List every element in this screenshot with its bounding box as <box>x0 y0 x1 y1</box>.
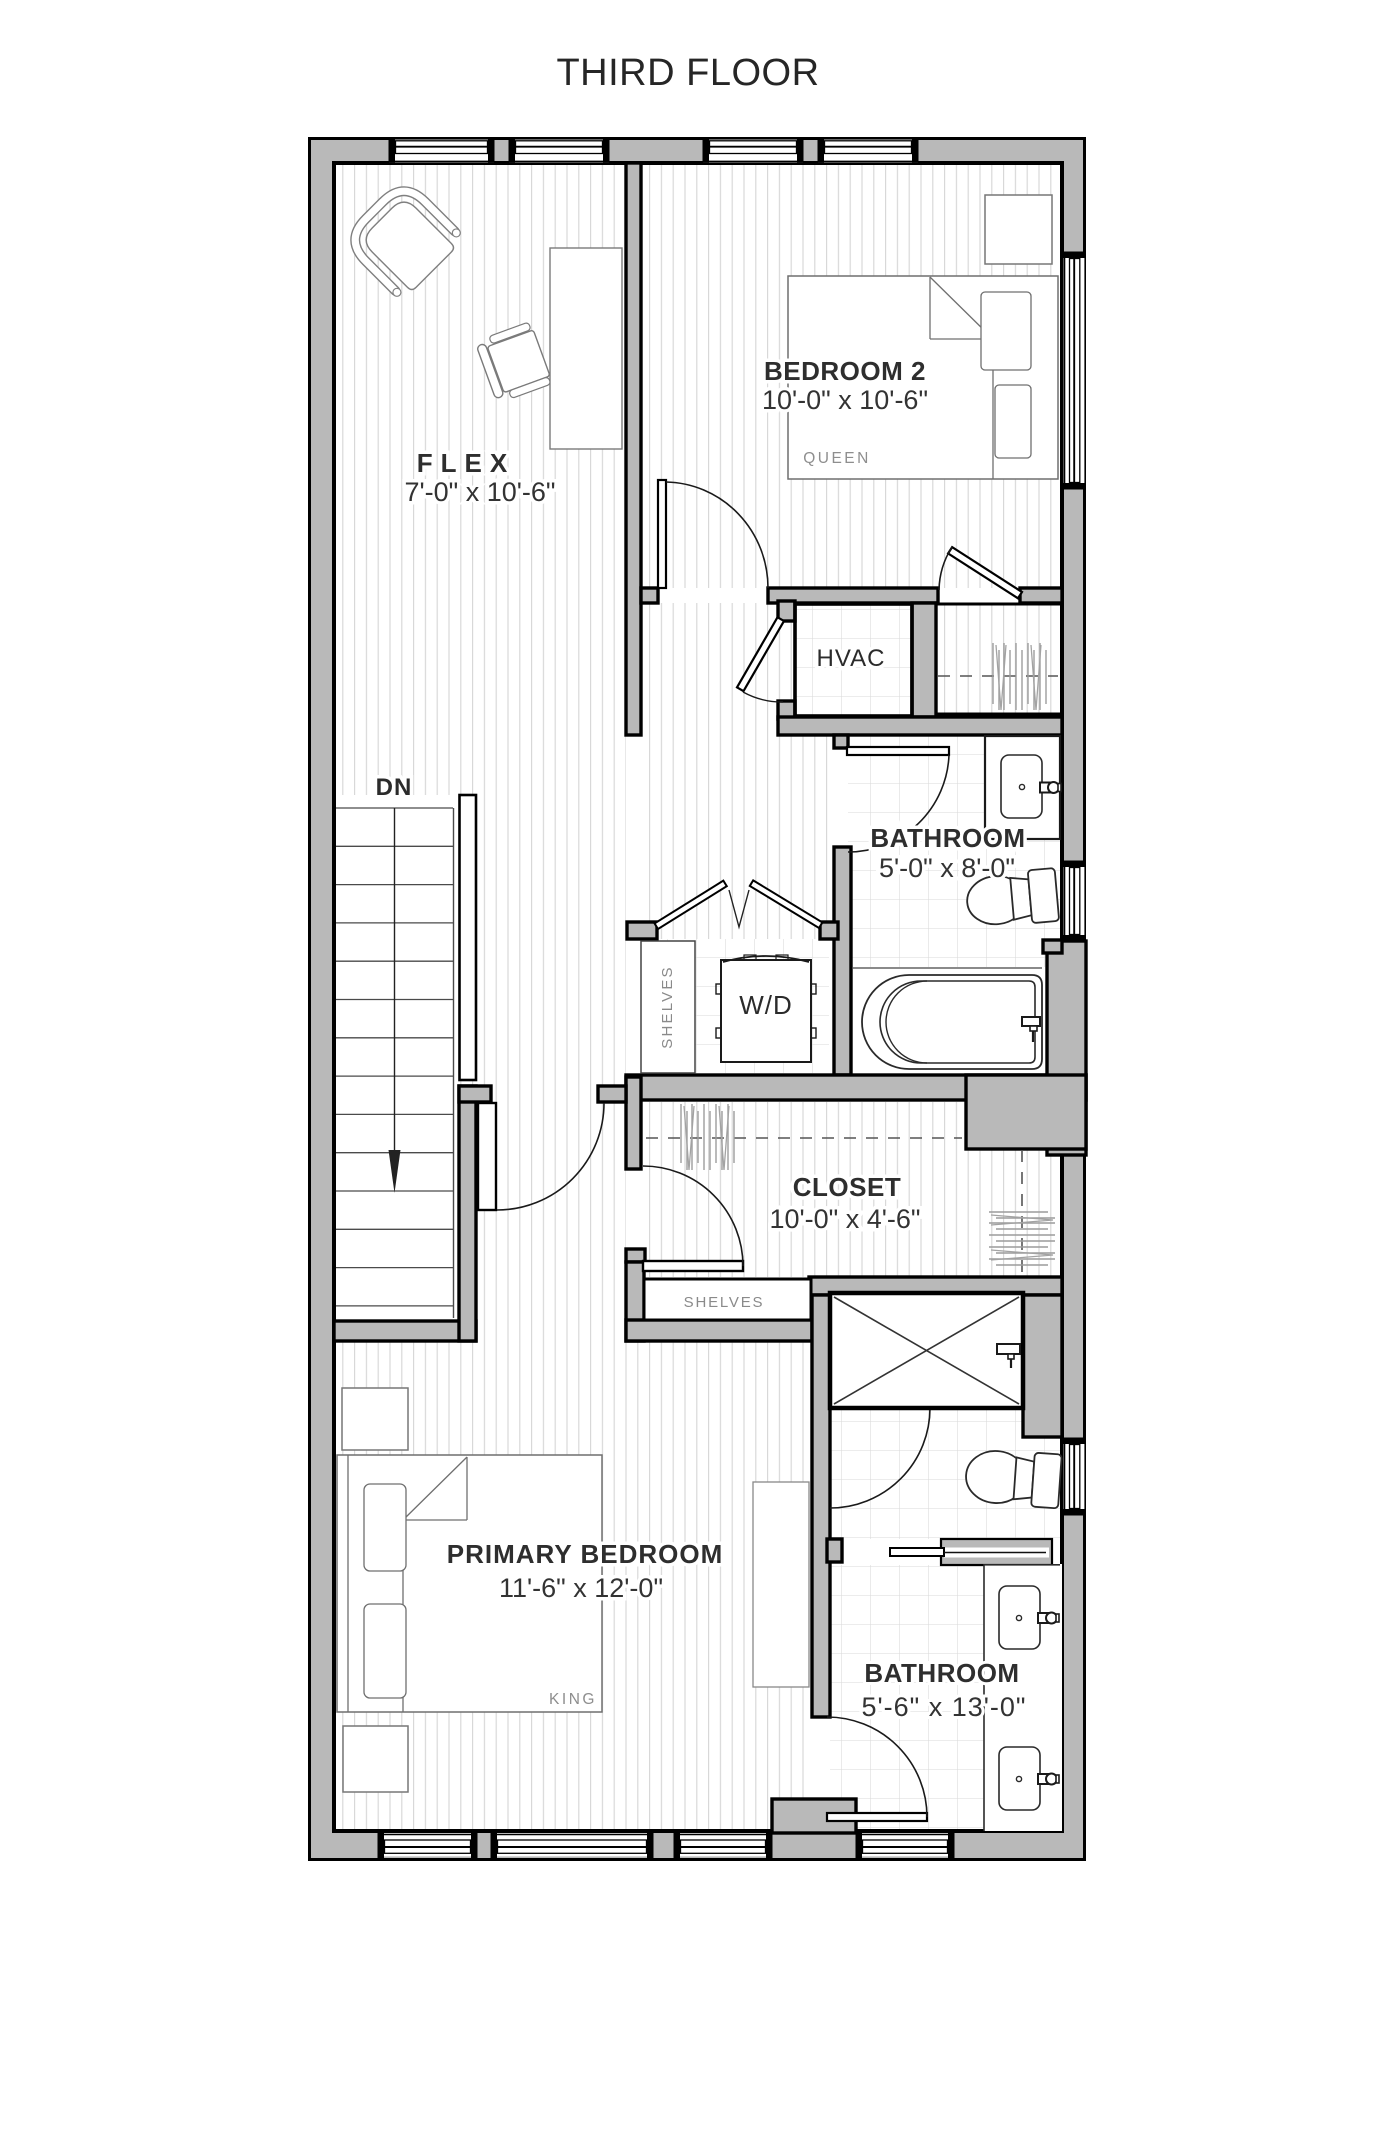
svg-text:10'-0" x 4'-6": 10'-0" x 4'-6" <box>769 1204 920 1234</box>
svg-text:HVAC: HVAC <box>817 645 886 672</box>
svg-text:SHELVES: SHELVES <box>684 1294 765 1311</box>
svg-text:SHELVES: SHELVES <box>659 965 676 1049</box>
svg-text:11'-6" x 12'-0": 11'-6" x 12'-0" <box>499 1573 663 1603</box>
svg-text:THIRD FLOOR: THIRD FLOOR <box>556 52 819 94</box>
svg-text:PRIMARY BEDROOM: PRIMARY BEDROOM <box>447 1539 723 1569</box>
svg-text:5'-6" x 13'-0": 5'-6" x 13'-0" <box>861 1692 1026 1722</box>
svg-text:7'-0" x 10'-6": 7'-0" x 10'-6" <box>404 477 555 507</box>
svg-text:QUEEN: QUEEN <box>803 450 871 467</box>
svg-text:BATHROOM: BATHROOM <box>870 823 1025 853</box>
svg-text:5'-0" x 8'-0": 5'-0" x 8'-0" <box>879 853 1015 883</box>
svg-text:KING: KING <box>549 1691 597 1708</box>
svg-text:BEDROOM 2: BEDROOM 2 <box>764 356 926 386</box>
svg-text:W/D: W/D <box>739 990 793 1020</box>
svg-text:10'-0" x 10'-6": 10'-0" x 10'-6" <box>762 385 928 415</box>
svg-text:FLEX: FLEX <box>417 448 515 478</box>
svg-text:DN: DN <box>376 774 413 801</box>
svg-text:BATHROOM: BATHROOM <box>864 1658 1019 1688</box>
svg-text:CLOSET: CLOSET <box>793 1172 901 1202</box>
